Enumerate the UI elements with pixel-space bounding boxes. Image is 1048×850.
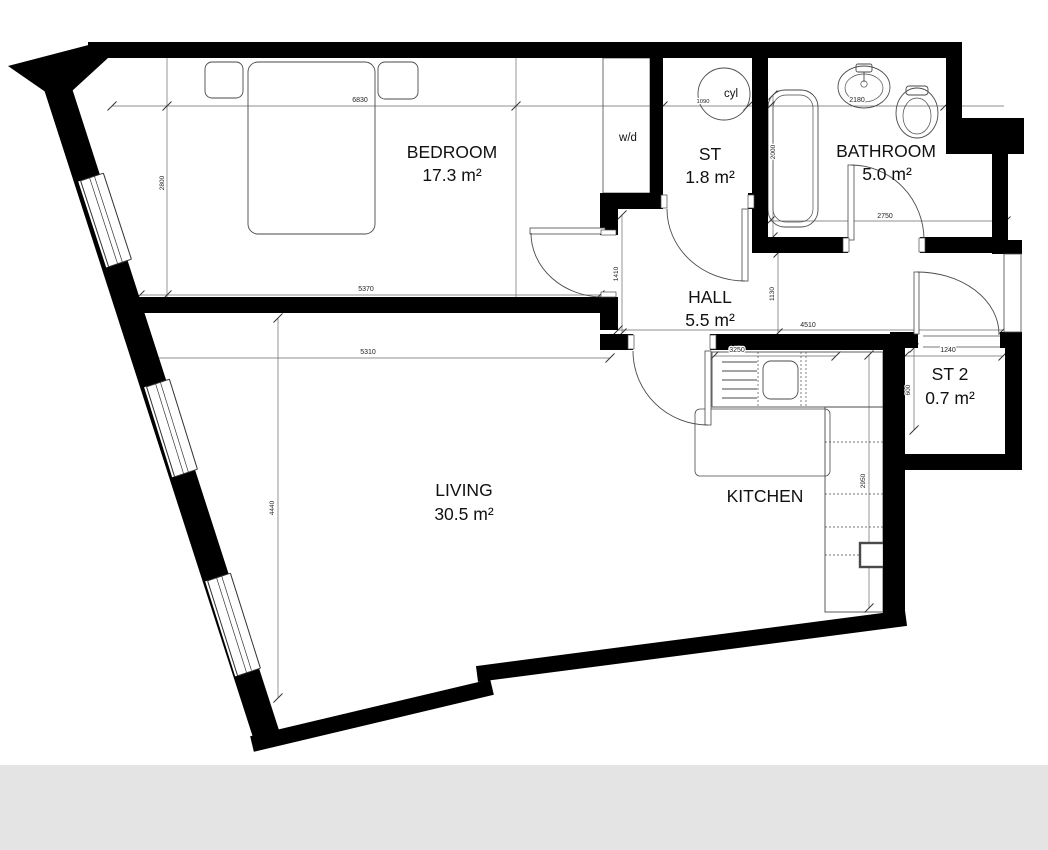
wall-right-upper (946, 58, 962, 120)
cylinder-label: cyl (724, 88, 738, 100)
appliance (860, 543, 884, 567)
floor-plan-canvas: BEDROOM 17.3 m² ST 1.8 m² BATHROOM 5.0 m… (0, 0, 1048, 850)
bedroom-label: BEDROOM (407, 142, 497, 162)
wall-bathroom-bottom-right (920, 237, 1008, 253)
st-label: ST (699, 144, 722, 164)
dim-5310: 5310 (360, 349, 376, 356)
dim-1240: 1240 (940, 347, 956, 354)
footer-band (0, 765, 1048, 850)
dim-1130: 1130 (769, 287, 776, 301)
wall-right-bathroom (992, 152, 1008, 242)
wall-wd-right (650, 58, 663, 209)
dim-3250: 3250 (729, 347, 745, 354)
dim-600: 600 (905, 384, 912, 395)
wall-bedroom-living (136, 297, 603, 313)
dim-2180: 2180 (849, 97, 865, 104)
dim-1410: 1410 (613, 266, 620, 281)
bathroom-area: 5.0 m² (862, 164, 912, 184)
bedroom-area: 17.3 m² (422, 165, 481, 185)
dim-1090: 1090 (697, 99, 710, 105)
living-area: 30.5 m² (434, 504, 493, 524)
dim-4440: 4440 (269, 500, 276, 515)
washer-dryer-label: w/d (618, 132, 637, 144)
entry-threshold (1004, 254, 1021, 332)
dim-2800: 2800 (159, 175, 166, 190)
dim-5370: 5370 (358, 286, 374, 293)
hall-label: HALL (688, 287, 732, 307)
wall-top (88, 42, 962, 58)
kitchen-label: KITCHEN (727, 486, 804, 506)
dim-6830: 6830 (352, 97, 368, 104)
wall-right-step (946, 118, 1024, 154)
bathroom-label: BATHROOM (836, 141, 936, 161)
dim-4510: 4510 (800, 322, 816, 329)
hall-area: 5.5 m² (685, 310, 735, 330)
wall-st2-right (1005, 332, 1022, 470)
st-area: 1.8 m² (685, 167, 735, 187)
wall-bathroom-bottom-left (752, 237, 848, 253)
dim-2750: 2750 (877, 213, 893, 220)
dim-2950: 2950 (860, 473, 867, 488)
living-label: LIVING (435, 480, 492, 500)
wall-st2-bottom (890, 454, 1022, 470)
dim-2000: 2000 (770, 144, 777, 159)
wall-st2-left (890, 332, 905, 470)
st2-area: 0.7 m² (925, 388, 975, 408)
floor-plan: BEDROOM 17.3 m² ST 1.8 m² BATHROOM 5.0 m… (0, 0, 1048, 850)
wall-st-bathroom (752, 58, 768, 240)
st2-label: ST 2 (932, 364, 969, 384)
